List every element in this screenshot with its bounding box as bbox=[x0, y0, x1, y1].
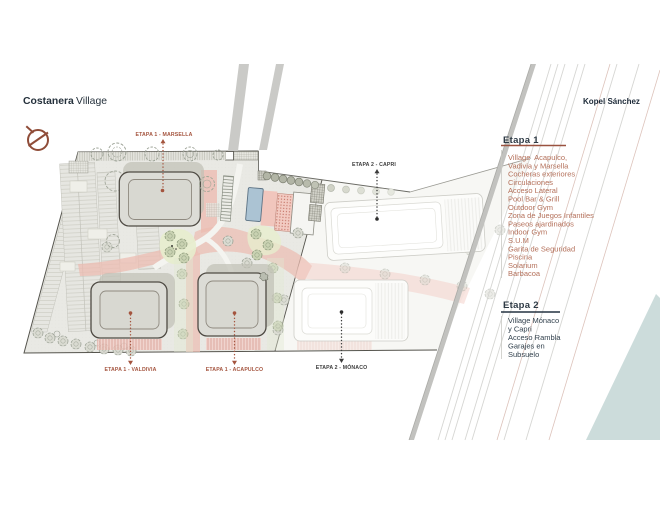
svg-text:Etapa 1: Etapa 1 bbox=[503, 135, 539, 146]
svg-text:Etapa 2: Etapa 2 bbox=[503, 300, 539, 311]
svg-text:Kopel Sánchez: Kopel Sánchez bbox=[583, 97, 640, 106]
svg-text:ETAPA 1 - VALDIVIA: ETAPA 1 - VALDIVIA bbox=[104, 367, 156, 373]
svg-text:ETAPA 1 - ACAPULCO: ETAPA 1 - ACAPULCO bbox=[206, 367, 263, 373]
svg-text:ETAPA 2 - MÓNACO: ETAPA 2 - MÓNACO bbox=[316, 363, 368, 371]
svg-text:ETAPA 1 - MARSELLA: ETAPA 1 - MARSELLA bbox=[135, 132, 192, 138]
svg-text:ETAPA 2 - CAPRI: ETAPA 2 - CAPRI bbox=[352, 162, 396, 168]
svg-text:CostaneraVillage: CostaneraVillage bbox=[23, 96, 107, 107]
